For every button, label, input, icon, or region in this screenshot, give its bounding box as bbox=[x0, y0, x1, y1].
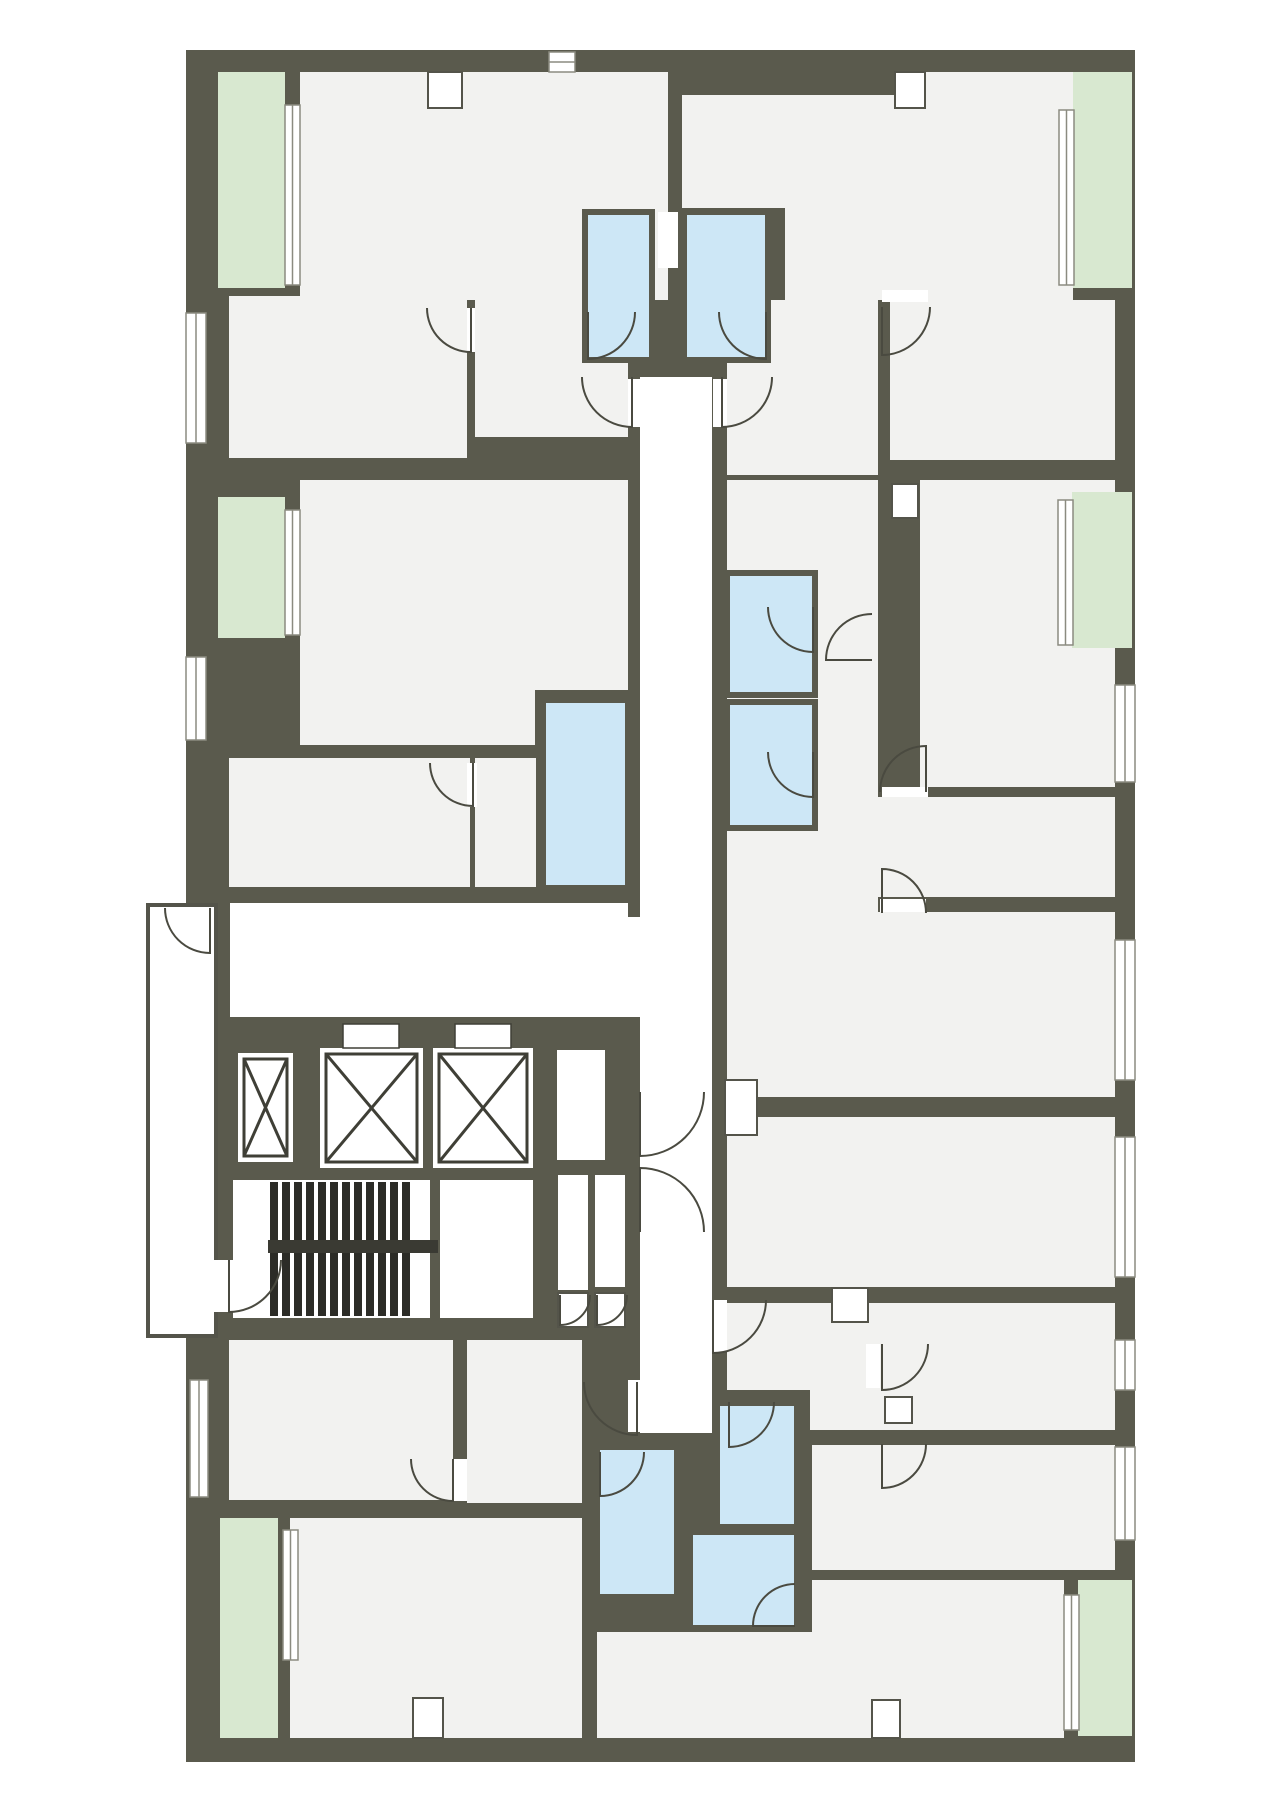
door-gap bbox=[866, 1344, 880, 1388]
room-floor bbox=[810, 1390, 1115, 1430]
room-floor bbox=[727, 1117, 1115, 1287]
corridor-floor bbox=[628, 917, 640, 1017]
door-gap bbox=[880, 899, 926, 912]
balcony-floor bbox=[1072, 492, 1132, 648]
corridor-floor bbox=[595, 1175, 625, 1287]
exterior-gallery bbox=[148, 905, 216, 1336]
balcony-floor bbox=[1078, 1580, 1132, 1736]
room-floor bbox=[229, 1340, 453, 1500]
corridor-floor bbox=[658, 212, 678, 268]
door-gap bbox=[628, 1380, 640, 1432]
corridor-floor bbox=[558, 1175, 588, 1290]
bathroom-floor bbox=[727, 702, 815, 828]
room-floor bbox=[785, 208, 1073, 300]
room-floor bbox=[727, 1303, 1115, 1390]
wall-notch bbox=[895, 72, 925, 108]
room-floor bbox=[597, 1632, 812, 1738]
corridor-floor bbox=[640, 377, 712, 1433]
wall-notch bbox=[725, 1080, 757, 1135]
wall-notch bbox=[872, 1700, 900, 1738]
stair-handrail bbox=[268, 1240, 438, 1253]
corridor-floor bbox=[440, 1180, 533, 1318]
door-gap bbox=[628, 379, 640, 427]
door-gap bbox=[882, 290, 928, 302]
door-gap bbox=[882, 787, 928, 797]
room-floor bbox=[300, 690, 535, 745]
balcony-floor bbox=[218, 497, 285, 638]
wall-notch bbox=[428, 72, 462, 108]
room-floor bbox=[475, 758, 536, 887]
bathroom-floor bbox=[543, 700, 628, 888]
room-floor bbox=[300, 480, 628, 690]
room-floor bbox=[229, 296, 467, 458]
floor-plan-svg bbox=[0, 0, 1280, 1810]
wall-notch bbox=[885, 1397, 912, 1423]
corridor-floor bbox=[557, 1050, 605, 1160]
bathroom-floor bbox=[585, 212, 652, 360]
door-gap bbox=[713, 1300, 727, 1352]
room-floor bbox=[812, 1580, 1064, 1738]
room-floor bbox=[467, 1340, 582, 1503]
room-floor bbox=[812, 1445, 1115, 1570]
corridor-floor bbox=[230, 903, 628, 1017]
wall-notch bbox=[413, 1698, 443, 1738]
wall-step bbox=[682, 50, 900, 95]
room-floor bbox=[229, 758, 470, 887]
bathroom-floor bbox=[690, 1532, 797, 1628]
door-gap bbox=[713, 379, 727, 427]
bathroom-floor bbox=[727, 573, 815, 695]
balcony-floor bbox=[220, 1518, 278, 1738]
elevator-door-slot bbox=[343, 1024, 399, 1048]
room-floor bbox=[890, 300, 1115, 460]
door-gap bbox=[453, 1459, 467, 1501]
wall-notch bbox=[892, 484, 918, 518]
elevator-door-slot bbox=[455, 1024, 511, 1048]
wall-notch bbox=[832, 1288, 868, 1322]
balcony-floor bbox=[1073, 72, 1132, 288]
floor-plan bbox=[0, 0, 1280, 1810]
balcony-floor bbox=[218, 72, 285, 288]
room-floor bbox=[727, 912, 1115, 1097]
bathroom-floor bbox=[597, 1447, 677, 1597]
